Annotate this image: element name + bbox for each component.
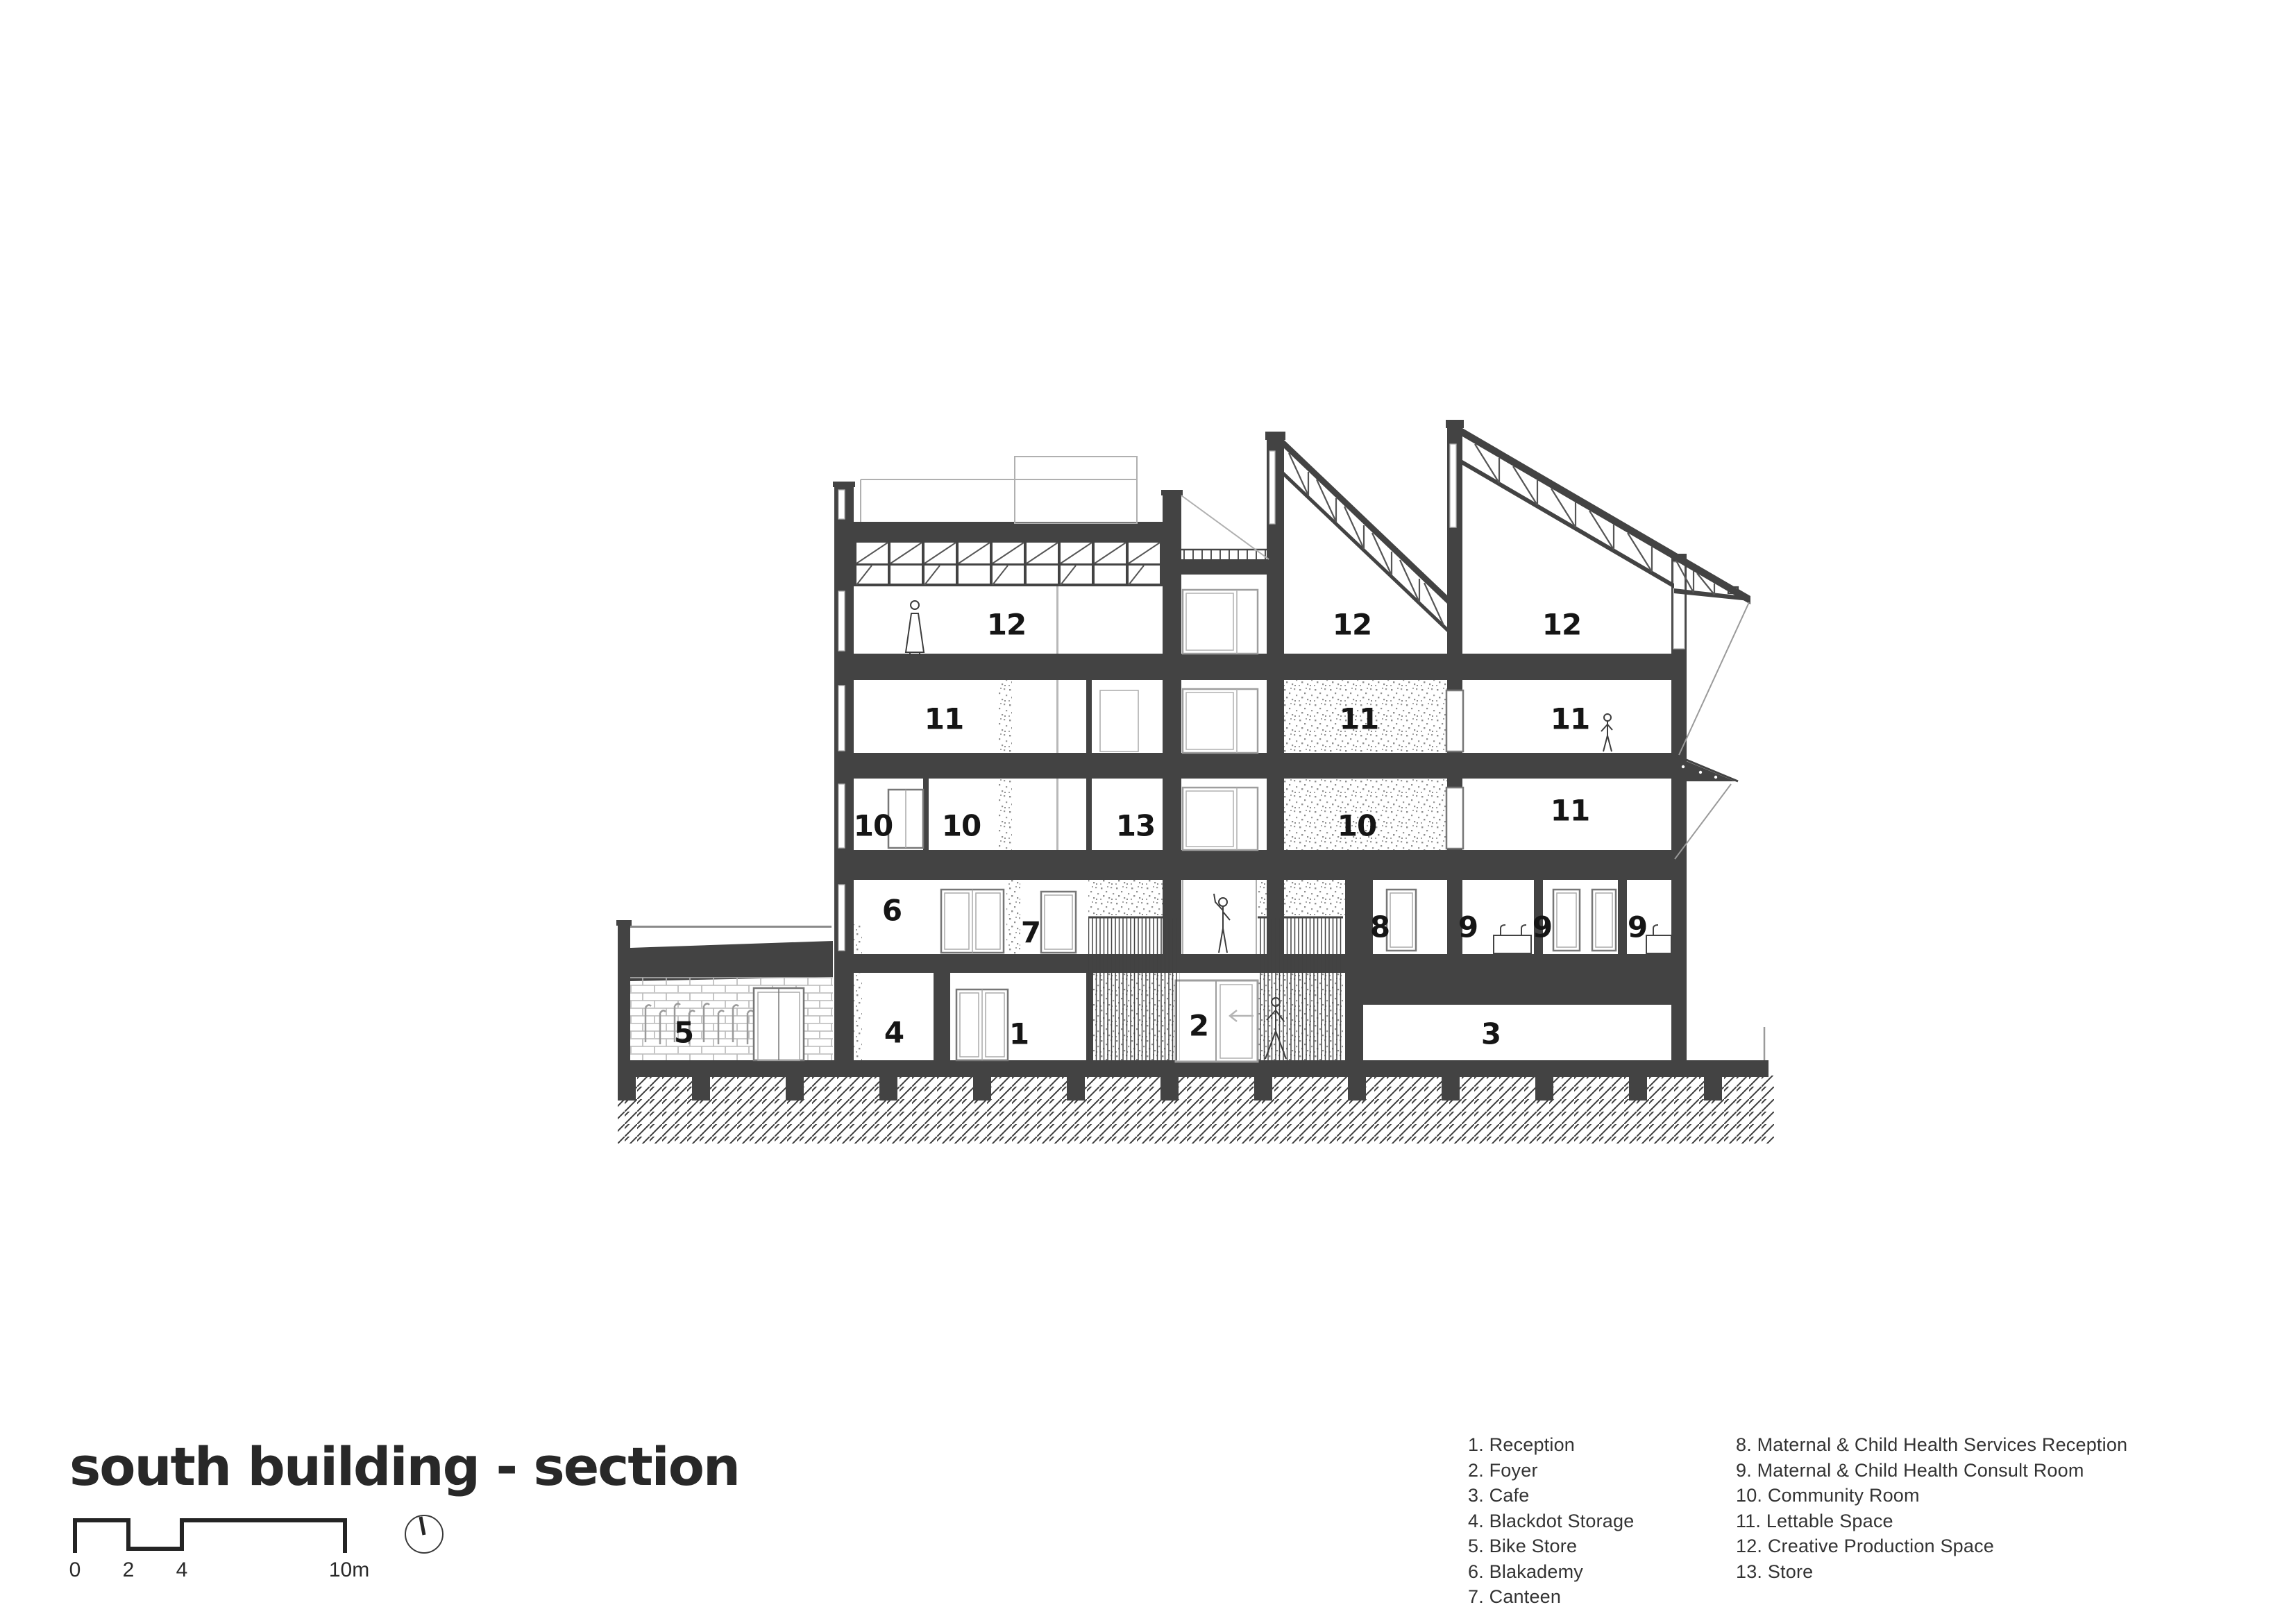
foyer-glazing-mullions [1183,880,1256,954]
sawtooth-roof-1 [1284,440,1447,632]
legend-item: 10. Community Room [1736,1483,2127,1509]
legend-item: 9. Maternal & Child Health Consult Room [1736,1458,2127,1484]
person-figure-arm-raised [1214,894,1230,953]
legend-item: 3. Cafe [1468,1483,1634,1509]
bike-store-door [754,988,804,1060]
room-number-label: 10 [1337,809,1376,843]
flat-roof-truss [854,540,1163,586]
rooftop-enclosure-lines [861,457,1137,523]
scale-label-4: 4 [176,1558,188,1582]
interior-mullions [1056,586,1058,850]
room-number-label: 12 [987,608,1026,642]
legend-item: 8. Maternal & Child Health Services Rece… [1736,1432,2127,1458]
room-number-label: 3 [1481,1017,1501,1051]
room-number-label: 10 [854,809,893,843]
legend-column-2: 8. Maternal & Child Health Services Rece… [1736,1432,2127,1584]
room-number-label: 1 [1009,1017,1029,1051]
ground-slab [618,1060,1769,1077]
room-number-label: 10 [942,809,981,843]
person-figure-standing [1601,714,1612,751]
room-number-label: 5 [674,1016,693,1050]
room-number-label: 12 [1333,608,1371,642]
person-figure-standing [906,601,924,655]
room-number-label: 6 [882,894,902,928]
room-number-label: 2 [1189,1009,1208,1043]
legend-item: 2. Foyer [1468,1458,1634,1484]
legend-item: 5. Bike Store [1468,1533,1634,1559]
room-number-label: 11 [1340,702,1378,736]
drawing-sheet: 121212111111101013101167899954123 south … [0,0,2296,1623]
room-number-label: 11 [1551,794,1589,828]
room-number-label: 11 [1551,702,1589,736]
room-number-label: 12 [1542,608,1581,642]
foyer-entry-door [1176,980,1258,1062]
room-number-label: 11 [925,702,963,736]
room-number-label: 9 [1628,910,1647,944]
room-number-label: 8 [1370,910,1390,944]
drawing-title: south building - section [69,1441,739,1493]
scale-label-10m: 10m [329,1558,369,1582]
room-number-label: 13 [1116,809,1155,843]
room-number-label: 9 [1533,910,1552,944]
sawtooth-roof-2 [1462,428,1750,604]
scale-bar [75,1520,345,1553]
bike-store-wing [616,920,833,1076]
legend-item: 1. Reception [1468,1432,1634,1458]
legend-item: 12. Creative Production Space [1736,1533,2127,1559]
scale-label-2: 2 [123,1558,135,1582]
room-number-label: 9 [1458,910,1478,944]
north-indicator-icon [405,1515,443,1553]
legend-item: 4. Blackdot Storage [1468,1509,1634,1534]
room-number-label: 7 [1021,916,1040,950]
room-number-label: 4 [884,1016,904,1050]
legend-item: 13. Store [1736,1559,2127,1585]
legend-item: 6. Blakademy [1468,1559,1634,1585]
scale-label-0: 0 [69,1558,81,1582]
legend-item: 11. Lettable Space [1736,1509,2127,1534]
legend-column-1: 1. Reception 2. Foyer 3. Cafe 4. Blackdo… [1468,1432,1634,1610]
legend-item: 7. Canteen [1468,1584,1634,1610]
